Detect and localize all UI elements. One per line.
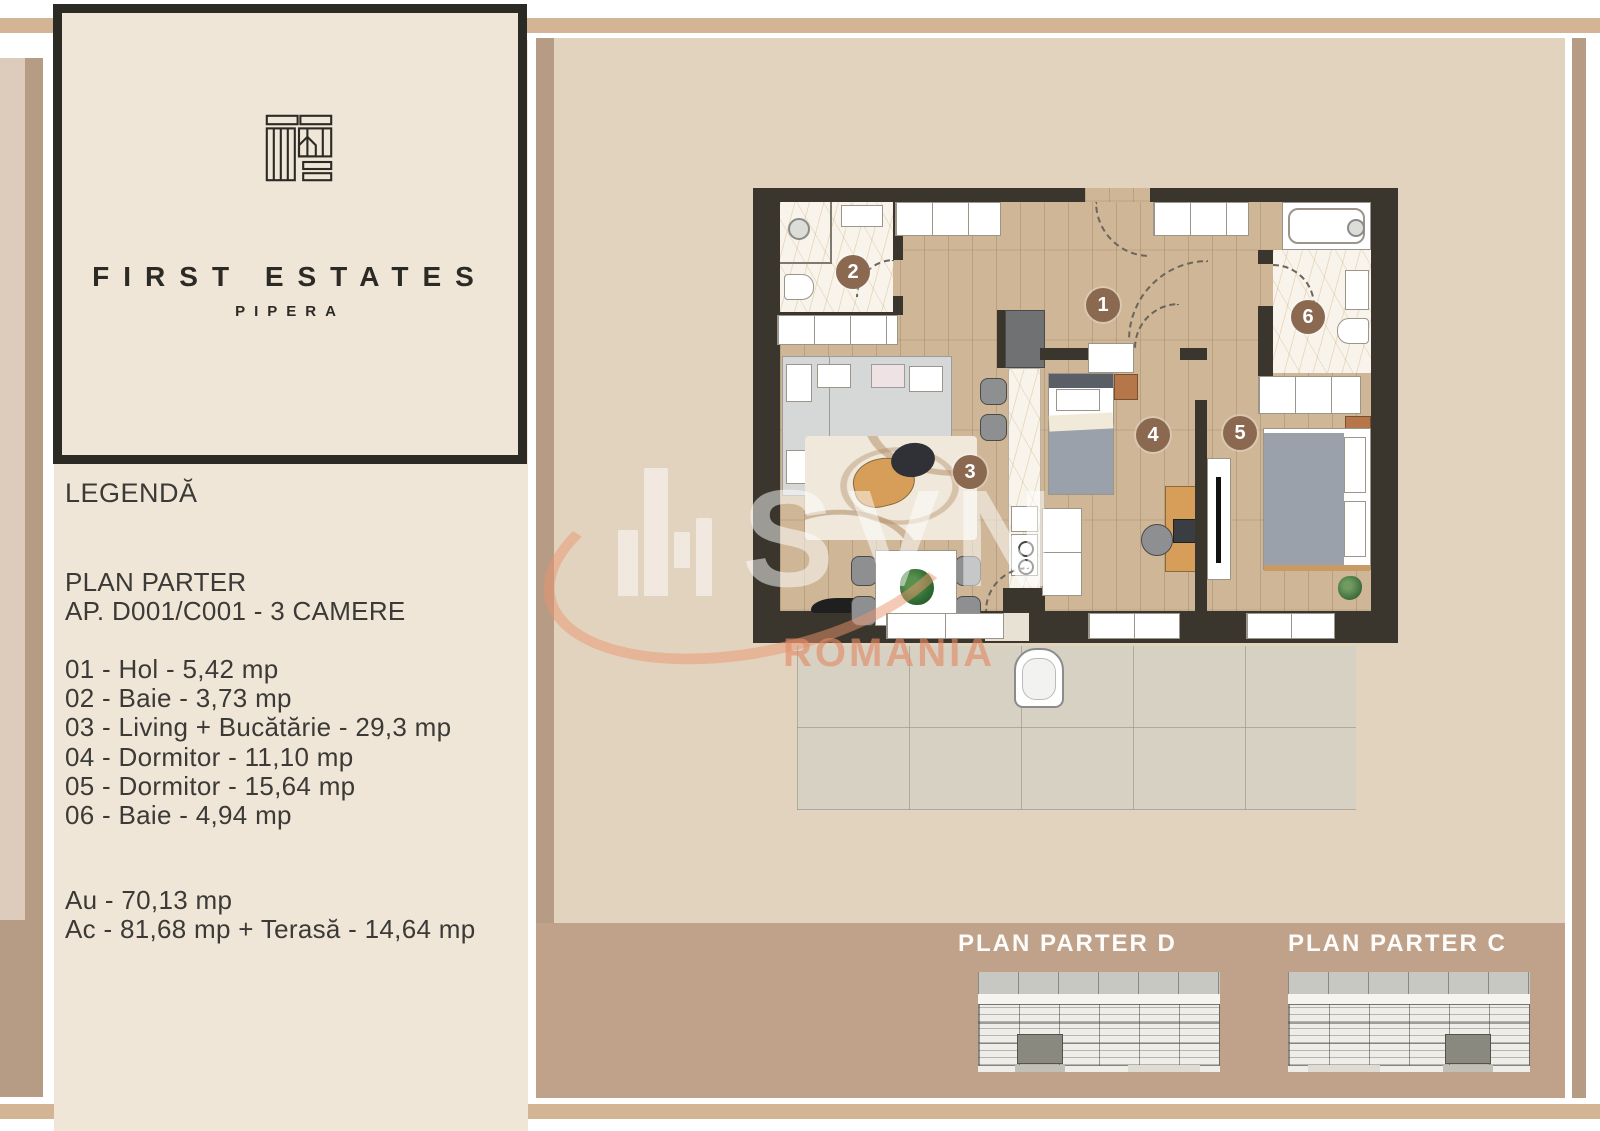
- legend-room-list: 01 - Hol - 5,42 mp 02 - Baie - 3,73 mp 0…: [65, 655, 451, 830]
- legend-room-05: 05 - Dormitor - 15,64 mp: [65, 772, 451, 801]
- miniplan-c-title: PLAN PARTER C: [1288, 930, 1507, 958]
- bathtub-faucet-icon: [1347, 219, 1365, 237]
- miniplan-porch: [1128, 1065, 1200, 1072]
- logo-box: FIRST ESTATES PIPERA: [53, 4, 527, 464]
- hall-closet: [1088, 343, 1134, 373]
- highlighted-unit: [1017, 1034, 1063, 1064]
- useful-area: Au - 70,13 mp: [65, 886, 475, 915]
- room-marker-5: 5: [1223, 416, 1257, 450]
- room-marker-1: 1: [1086, 288, 1120, 322]
- miniplan-d-thumbnail: [978, 972, 1220, 1072]
- miniplan-roof: [1288, 972, 1530, 994]
- bathroom6-toilet: [1337, 318, 1369, 344]
- bathroom6-wall: [1258, 306, 1273, 376]
- miniplan-d-title: PLAN PARTER D: [958, 930, 1177, 958]
- desk-chair: [1141, 524, 1173, 556]
- miniplan-body: [978, 1044, 1220, 1066]
- bathtub: [1282, 202, 1371, 250]
- miniplan-roof: [978, 972, 1220, 994]
- sofa-pillow: [909, 366, 943, 392]
- bathroom2-toilet: [784, 274, 814, 300]
- wardrobe: [777, 315, 898, 345]
- tv-icon: [1216, 477, 1221, 563]
- shower-head-icon: [788, 218, 810, 240]
- entry-opening: [1085, 188, 1150, 202]
- bar-stool: [980, 414, 1007, 441]
- bathroom6-sink: [1345, 270, 1369, 310]
- first-estates-logo-icon: [264, 113, 334, 183]
- bed-headboard: [1049, 374, 1113, 388]
- miniplan-body: [978, 1004, 1220, 1044]
- brand-subtitle: PIPERA: [62, 303, 518, 320]
- sofa-pillow: [871, 364, 905, 388]
- miniplan-body: [1288, 1004, 1530, 1044]
- wardrobe: [1246, 613, 1335, 639]
- bed-frame: [1264, 565, 1370, 571]
- legend-room-04: 04 - Dormitor - 11,10 mp: [65, 743, 451, 772]
- right-stripe-dark: [1572, 38, 1586, 1098]
- interior-wall: [1040, 348, 1088, 360]
- interior-wall: [1195, 400, 1207, 611]
- legend-room-06: 06 - Baie - 4,94 mp: [65, 801, 451, 830]
- nightstand: [1114, 374, 1138, 400]
- wardrobe: [895, 202, 1001, 236]
- legend-totals: Au - 70,13 mp Ac - 81,68 mp + Terasă - 1…: [65, 886, 475, 944]
- plan-title: PLAN PARTER: [65, 568, 247, 597]
- bed-duvet: [1264, 433, 1344, 565]
- wardrobe: [1258, 376, 1361, 414]
- miniplan-strip: [1288, 994, 1530, 1004]
- terrace-chair: [1014, 648, 1064, 708]
- legend-room-02: 02 - Baie - 3,73 mp: [65, 684, 451, 713]
- room-marker-6: 6: [1291, 300, 1325, 334]
- room-marker-2: 2: [836, 255, 870, 289]
- shower: [780, 202, 832, 264]
- watermark-country: ROMANIA: [783, 633, 995, 673]
- miniplan-porch: [1015, 1065, 1065, 1072]
- wardrobe: [1153, 202, 1249, 236]
- bed-pillow: [1344, 501, 1366, 557]
- legend-room-01: 01 - Hol - 5,42 mp: [65, 655, 451, 684]
- sofa-pillow: [817, 364, 851, 388]
- left-stripe-light: [0, 58, 25, 920]
- bathroom6-wall: [1258, 250, 1273, 264]
- highlighted-unit: [1445, 1034, 1491, 1064]
- miniplan-strip: [978, 994, 1220, 1004]
- fridge: [1005, 310, 1045, 368]
- kitchen-wall: [997, 310, 1005, 368]
- interior-wall: [1195, 348, 1207, 360]
- bathroom2-sink: [841, 205, 883, 227]
- bar-stool: [980, 378, 1007, 405]
- brand-name: FIRST ESTATES: [62, 261, 518, 293]
- miniplan-porch: [1308, 1065, 1380, 1072]
- bed-blanket: [1049, 412, 1114, 431]
- wardrobe: [1088, 613, 1180, 639]
- bed-pillow: [1056, 389, 1100, 411]
- double-bed: [1263, 428, 1371, 570]
- miniplan-body: [1288, 1044, 1530, 1066]
- miniplan-c-thumbnail: [1288, 972, 1530, 1072]
- legend-room-03: 03 - Living + Bucătărie - 29,3 mp: [65, 713, 451, 742]
- bed-pillow: [1344, 437, 1366, 493]
- built-area: Ac - 81,68 mp + Terasă - 14,64 mp: [65, 915, 475, 944]
- brochure-page: FIRST ESTATES PIPERA LEGENDĂ PLAN PARTER…: [0, 0, 1600, 1131]
- legend-title: LEGENDĂ: [65, 478, 198, 509]
- tv-panel: [1207, 458, 1231, 580]
- terrace-chair-seat: [1022, 658, 1056, 700]
- apartment-label: AP. D001/C001 - 3 CAMERE: [65, 597, 406, 626]
- interior-wall: [1180, 348, 1195, 360]
- sofa-pillow: [786, 364, 812, 402]
- miniplan-porch: [1443, 1065, 1493, 1072]
- watermark-brand: SVN: [742, 470, 1068, 608]
- room-marker-4: 4: [1136, 418, 1170, 452]
